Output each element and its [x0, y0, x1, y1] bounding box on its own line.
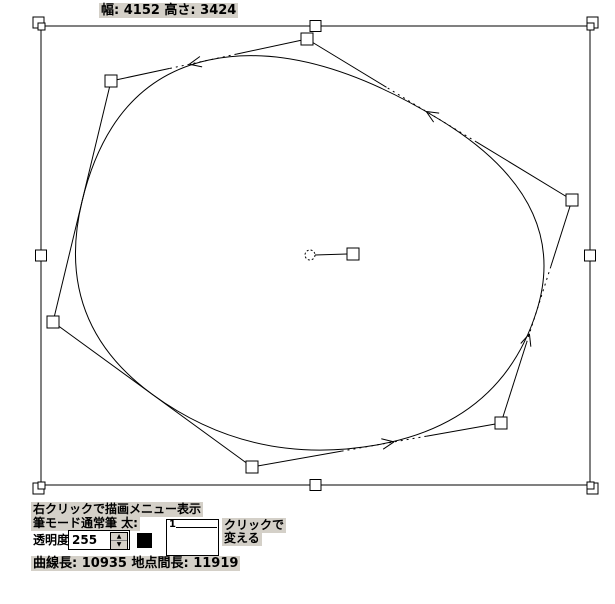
- control-polygon-edge: [236, 39, 307, 54]
- control-polygon-edge: [501, 343, 527, 423]
- selection-handle-corner-inner[interactable]: [38, 482, 45, 489]
- curve-control-point[interactable]: [566, 194, 578, 206]
- control-polygon-edge: [307, 39, 387, 87]
- curve-control-point[interactable]: [301, 33, 313, 45]
- selection-handle-corner-inner[interactable]: [587, 482, 594, 489]
- curve-control-point[interactable]: [495, 417, 507, 429]
- selection-bounding-box: [41, 26, 590, 485]
- center-link-line: [315, 254, 347, 255]
- center-point-icon[interactable]: [305, 250, 315, 260]
- thickness-sample-line: [176, 527, 217, 528]
- selection-handle-corner-inner[interactable]: [38, 23, 45, 30]
- curve-control-point[interactable]: [105, 75, 117, 87]
- thickness-value: 1: [169, 520, 176, 530]
- direction-arrow-icon: [189, 64, 202, 67]
- curve-length-status: 曲線長: 10935 地点間長: 11919: [31, 556, 240, 571]
- direction-arrow-icon: [426, 111, 433, 122]
- opacity-spinner: ▲ ▼: [110, 532, 128, 550]
- control-polygon-edge: [426, 423, 501, 436]
- direction-arrow-icon: [521, 334, 530, 344]
- control-polygon-edge: [477, 142, 572, 200]
- selection-handle-mid[interactable]: [585, 250, 596, 261]
- curve-control-point[interactable]: [246, 461, 258, 473]
- thickness-click-hint-line2: 変える: [222, 531, 262, 546]
- brush-thickness-preview[interactable]: 1: [166, 519, 219, 556]
- context-menu-hint: 右クリックで描画メニュー表示: [31, 502, 203, 517]
- paint-app-window: 幅: 4152 高さ: 3424 右クリックで描画メニュー表示 筆モード通常筆 …: [0, 0, 615, 604]
- direction-arrow-icon: [529, 334, 530, 347]
- opacity-input[interactable]: 255 ▲ ▼: [68, 530, 130, 550]
- opacity-value: 255: [72, 533, 97, 547]
- selection-handle-mid[interactable]: [310, 21, 321, 32]
- control-polygon-edge: [551, 200, 572, 267]
- brush-color-swatch[interactable]: [137, 533, 152, 548]
- control-polygon-edge: [252, 451, 342, 467]
- spinner-down-icon[interactable]: ▼: [111, 540, 127, 549]
- selection-handle-corner-inner[interactable]: [587, 23, 594, 30]
- brush-mode-label: 筆モード通常筆 太:: [31, 516, 140, 531]
- selection-handle-mid[interactable]: [310, 480, 321, 491]
- curve-control-point[interactable]: [47, 316, 59, 328]
- selection-handle-mid[interactable]: [36, 250, 47, 261]
- direction-arrow-icon: [381, 439, 394, 442]
- center-handle[interactable]: [347, 248, 359, 260]
